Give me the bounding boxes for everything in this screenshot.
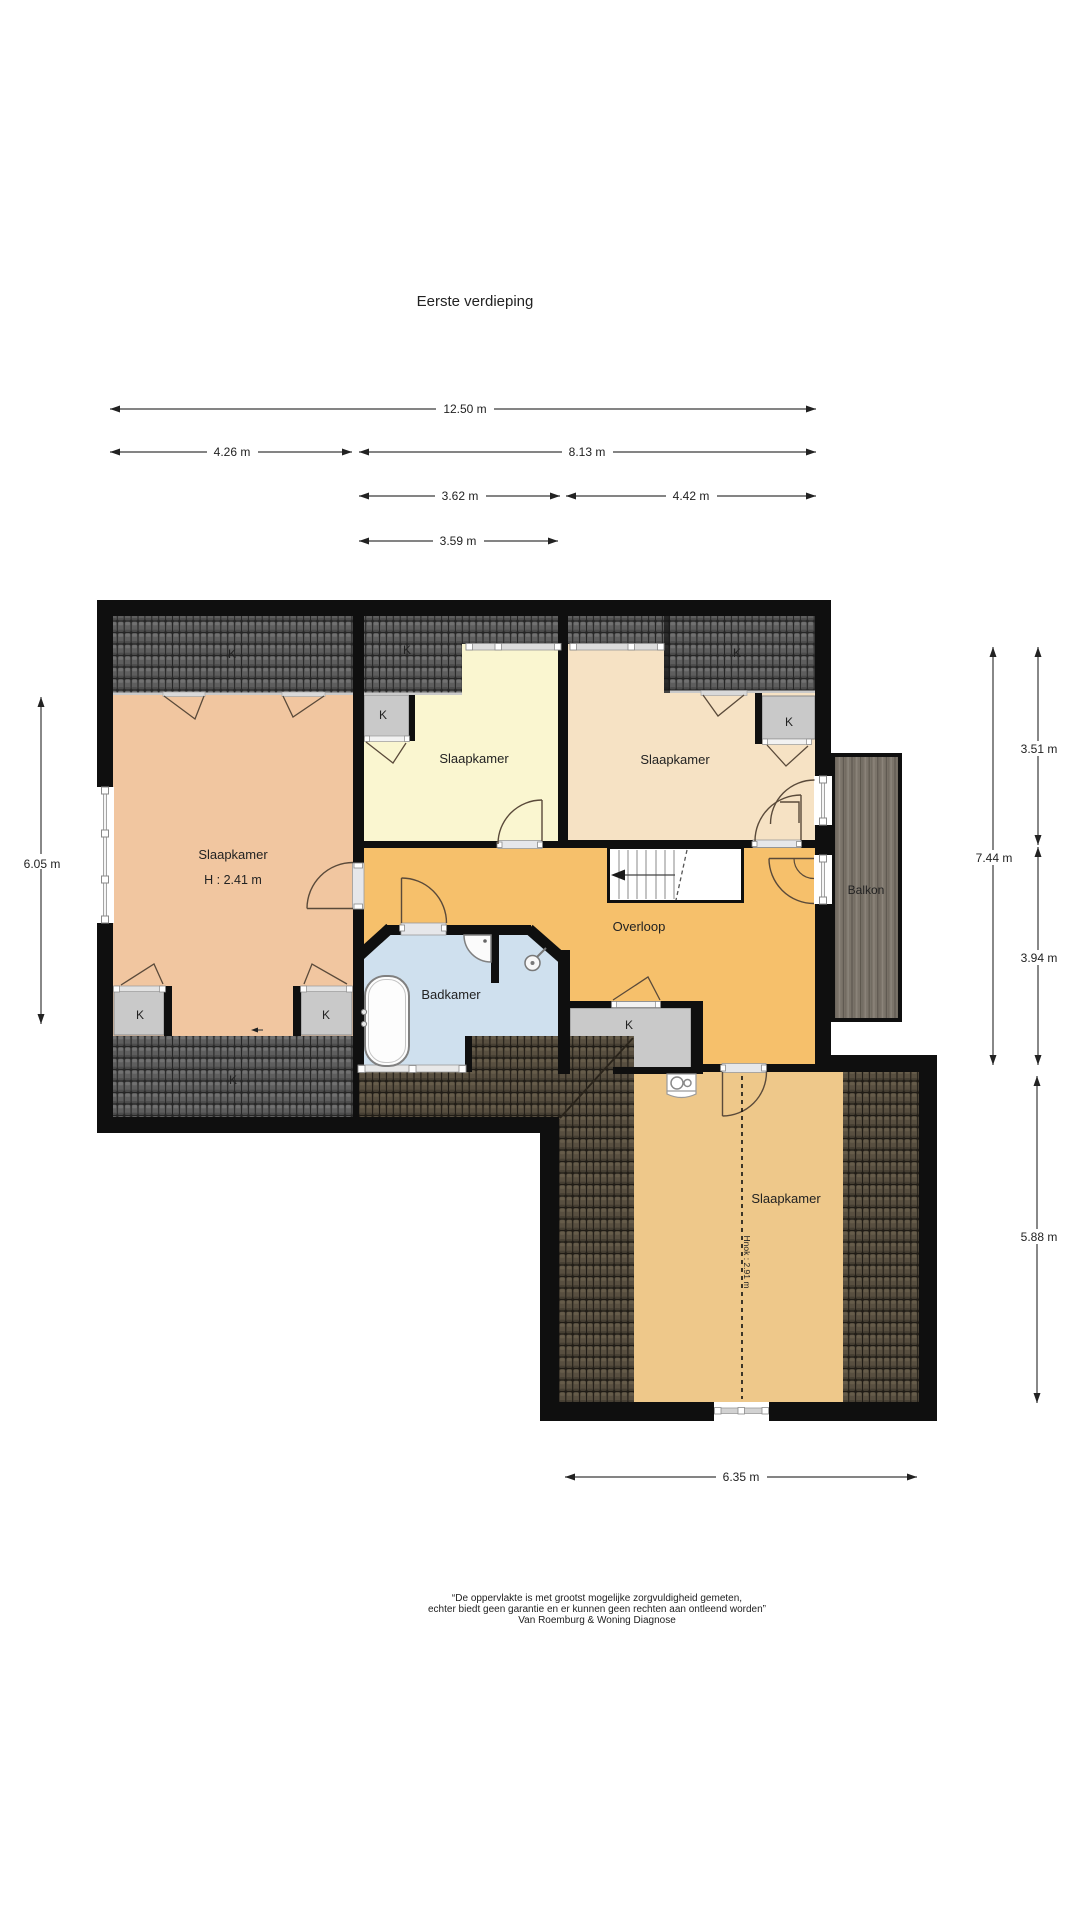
svg-text:12.50 m: 12.50 m	[443, 402, 486, 416]
svg-text:Slaapkamer: Slaapkamer	[439, 751, 509, 766]
svg-text:H : 2.41 m: H : 2.41 m	[204, 873, 262, 887]
svg-text:5.88 m: 5.88 m	[1021, 1230, 1058, 1244]
svg-text:Slaapkamer: Slaapkamer	[640, 752, 710, 767]
svg-text:3.51 m: 3.51 m	[1021, 742, 1058, 756]
svg-text:6.05 m: 6.05 m	[24, 857, 61, 871]
svg-text:Slaapkamer: Slaapkamer	[751, 1191, 821, 1206]
svg-text:4.26 m: 4.26 m	[214, 445, 251, 459]
svg-text:Badkamer: Badkamer	[421, 987, 481, 1002]
svg-text:3.59 m: 3.59 m	[440, 534, 477, 548]
svg-text:Balkon: Balkon	[848, 883, 885, 897]
svg-text:K: K	[785, 715, 793, 729]
svg-text:6.35 m: 6.35 m	[723, 1470, 760, 1484]
svg-text:Slaapkamer: Slaapkamer	[198, 847, 268, 862]
svg-text:K: K	[379, 708, 387, 722]
svg-text:Overloop: Overloop	[613, 919, 666, 934]
svg-text:Van Roemburg & Woning Diagnose: Van Roemburg & Woning Diagnose	[518, 1615, 676, 1626]
svg-text:K: K	[229, 1073, 237, 1087]
svg-text:K: K	[322, 1008, 330, 1022]
svg-text:Eerste verdieping: Eerste verdieping	[417, 293, 534, 310]
svg-text:Hnok : 2.91 m: Hnok : 2.91 m	[742, 1236, 752, 1289]
svg-text:8.13 m: 8.13 m	[569, 445, 606, 459]
svg-text:3.62 m: 3.62 m	[442, 489, 479, 503]
svg-text:K: K	[136, 1008, 144, 1022]
svg-text:3.94 m: 3.94 m	[1021, 951, 1058, 965]
svg-text:K: K	[733, 646, 741, 660]
svg-text:K: K	[403, 643, 411, 657]
svg-text:K: K	[625, 1018, 633, 1032]
svg-text:4.42 m: 4.42 m	[673, 489, 710, 503]
svg-text:echter biedt geen garantie en: echter biedt geen garantie en er kunnen …	[428, 1604, 766, 1615]
svg-text:7.44 m: 7.44 m	[976, 851, 1013, 865]
svg-text:“De oppervlakte is met grootst: “De oppervlakte is met grootst mogelijke…	[452, 1593, 742, 1604]
svg-text:K: K	[228, 647, 236, 661]
